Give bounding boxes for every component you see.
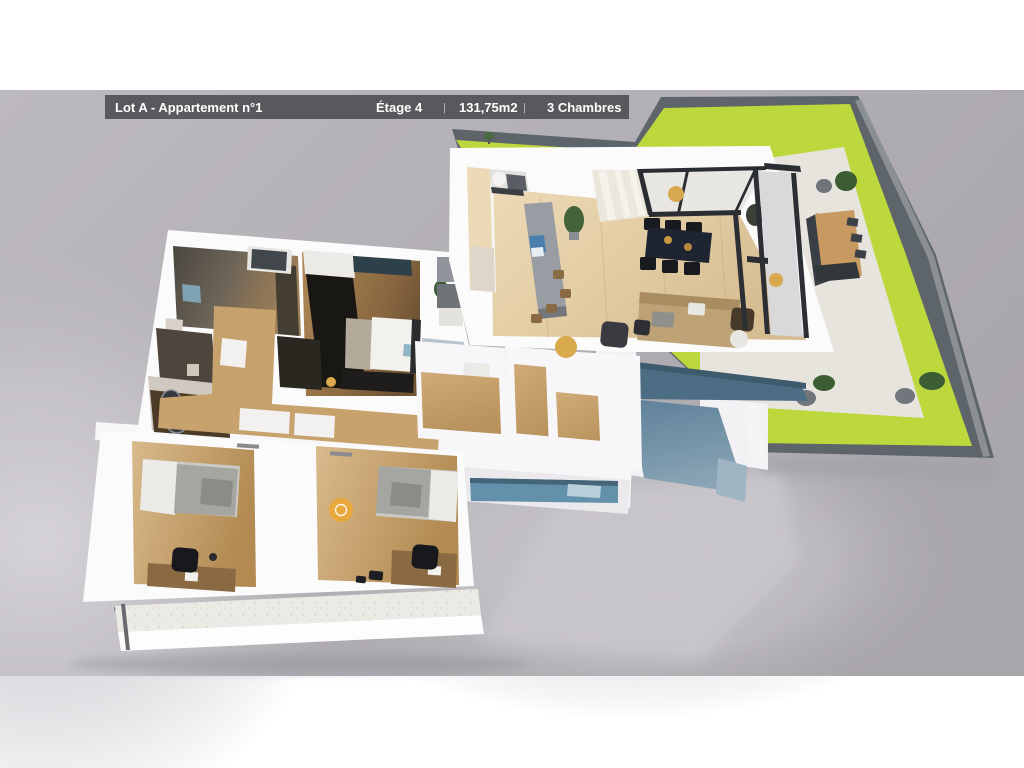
svg-text:Étage 4: Étage 4 — [376, 100, 423, 115]
svg-text:131,75m2: 131,75m2 — [459, 100, 518, 115]
svg-text:3 Chambres: 3 Chambres — [547, 100, 621, 115]
svg-text:|: | — [523, 102, 526, 114]
svg-text:|: | — [443, 102, 446, 114]
svg-text:Lot A - Appartement n°1: Lot A - Appartement n°1 — [115, 100, 262, 115]
